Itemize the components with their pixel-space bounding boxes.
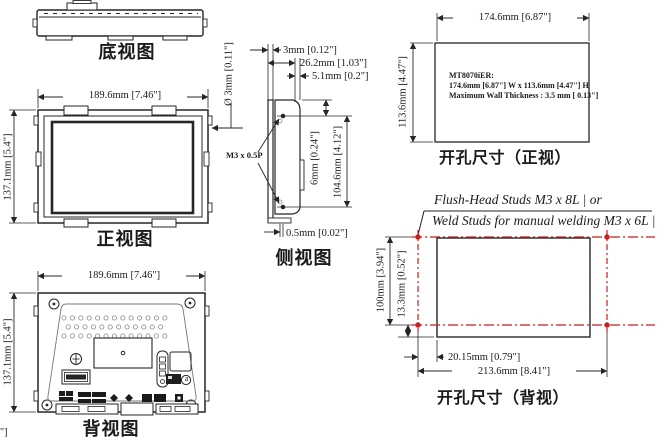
front-height-dim: 137.1mm [5.4"] xyxy=(2,134,13,201)
port-icons xyxy=(59,391,183,403)
fuse-label-plate xyxy=(62,370,90,384)
corner-screws xyxy=(42,298,196,410)
vent-holes xyxy=(62,316,167,338)
back-width-dim: 189.6mm [7.46"] xyxy=(62,270,186,281)
battery-box xyxy=(170,352,191,371)
stud-note-line2: Weld Studs for manual welding M3 x 6L | xyxy=(432,214,655,228)
side-stud-span-dim: 104.6mm [4.12"] xyxy=(332,126,343,198)
cutout-note-line2: 174.6mm [6.87"] W x 113.6mm [4.47"] H xyxy=(449,81,598,91)
side-depth-dim: 26.2mm [1.03"] xyxy=(300,58,367,69)
fuse-symbol xyxy=(71,354,82,365)
side-thread-label: M3 x 0.5P xyxy=(226,151,263,160)
side-rear-dim: 5.1mm [0.2"] xyxy=(312,71,369,82)
page-edge-artifact: "] xyxy=(0,428,7,439)
cutout-back-offset-v-dim: 13.3mm [0.52"] xyxy=(396,251,407,318)
cutout-front-height-dim: 113.6mm [4.47"] xyxy=(397,56,408,128)
side-view-label: 侧视图 xyxy=(264,249,344,268)
cutout-back-rect xyxy=(437,238,590,337)
cutout-front-width-dim: 174.6mm [6.87"] xyxy=(453,12,577,23)
callout-a-label: a xyxy=(184,375,190,383)
cutout-front-note: MT8070iER: 174.6mm [6.87"] W x 113.6mm [… xyxy=(449,71,598,101)
cutout-back-label: 开孔尺寸（背视） xyxy=(413,391,593,408)
port-connectors xyxy=(56,403,198,415)
front-view-label: 正视图 xyxy=(85,230,165,249)
bottom-view-drawing xyxy=(33,1,207,41)
front-width-dim: 189.6mm [7.46"] xyxy=(63,90,187,101)
cutout-back-width-dim: 213.6mm [8.41"] xyxy=(452,366,576,377)
reset-chip xyxy=(166,374,181,384)
access-plate xyxy=(94,338,152,368)
cutout-back-height-dim: 100mm [3.94"] xyxy=(375,248,386,312)
cutout-note-line3: Maximum Wall Thickness : 3.5 mm [ 0.13"] xyxy=(449,91,598,101)
front-screen xyxy=(52,122,193,213)
cutout-back-offset-h-dim: 20.15mm [0.79"] xyxy=(448,352,520,363)
cutout-note-line1: MT8070iER: xyxy=(449,71,598,81)
bottom-view-label: 底视图 xyxy=(87,43,167,62)
stud-note-line1: Flush-Head Studs M3 x 8L | or xyxy=(434,193,602,207)
dip-switch xyxy=(157,351,168,387)
back-view-label: 背视图 xyxy=(71,420,151,439)
stud-centrelines xyxy=(412,230,655,332)
back-height-dim: 137.1mm [5.4"] xyxy=(2,319,13,386)
stud-points xyxy=(415,234,609,327)
cutout-front-label: 开孔尺寸（正视） xyxy=(415,151,595,168)
rear-cover-outline xyxy=(48,304,196,401)
side-bezel-dim: 3mm [0.12"] xyxy=(283,45,337,56)
side-lip-dim: 0.5mm [0.02"] xyxy=(286,228,348,239)
side-stud-offset-dim: 6mm [0.24"] xyxy=(309,131,320,185)
front-hole-dim: Ø 3mm [0.11"] xyxy=(223,42,234,106)
back-view-drawing xyxy=(9,271,209,415)
front-view-drawing xyxy=(9,89,243,227)
drawing-canvas: 底视图 189.6mm [7.46"] 137.1mm [5.4"] Ø 3mm… xyxy=(0,0,660,443)
